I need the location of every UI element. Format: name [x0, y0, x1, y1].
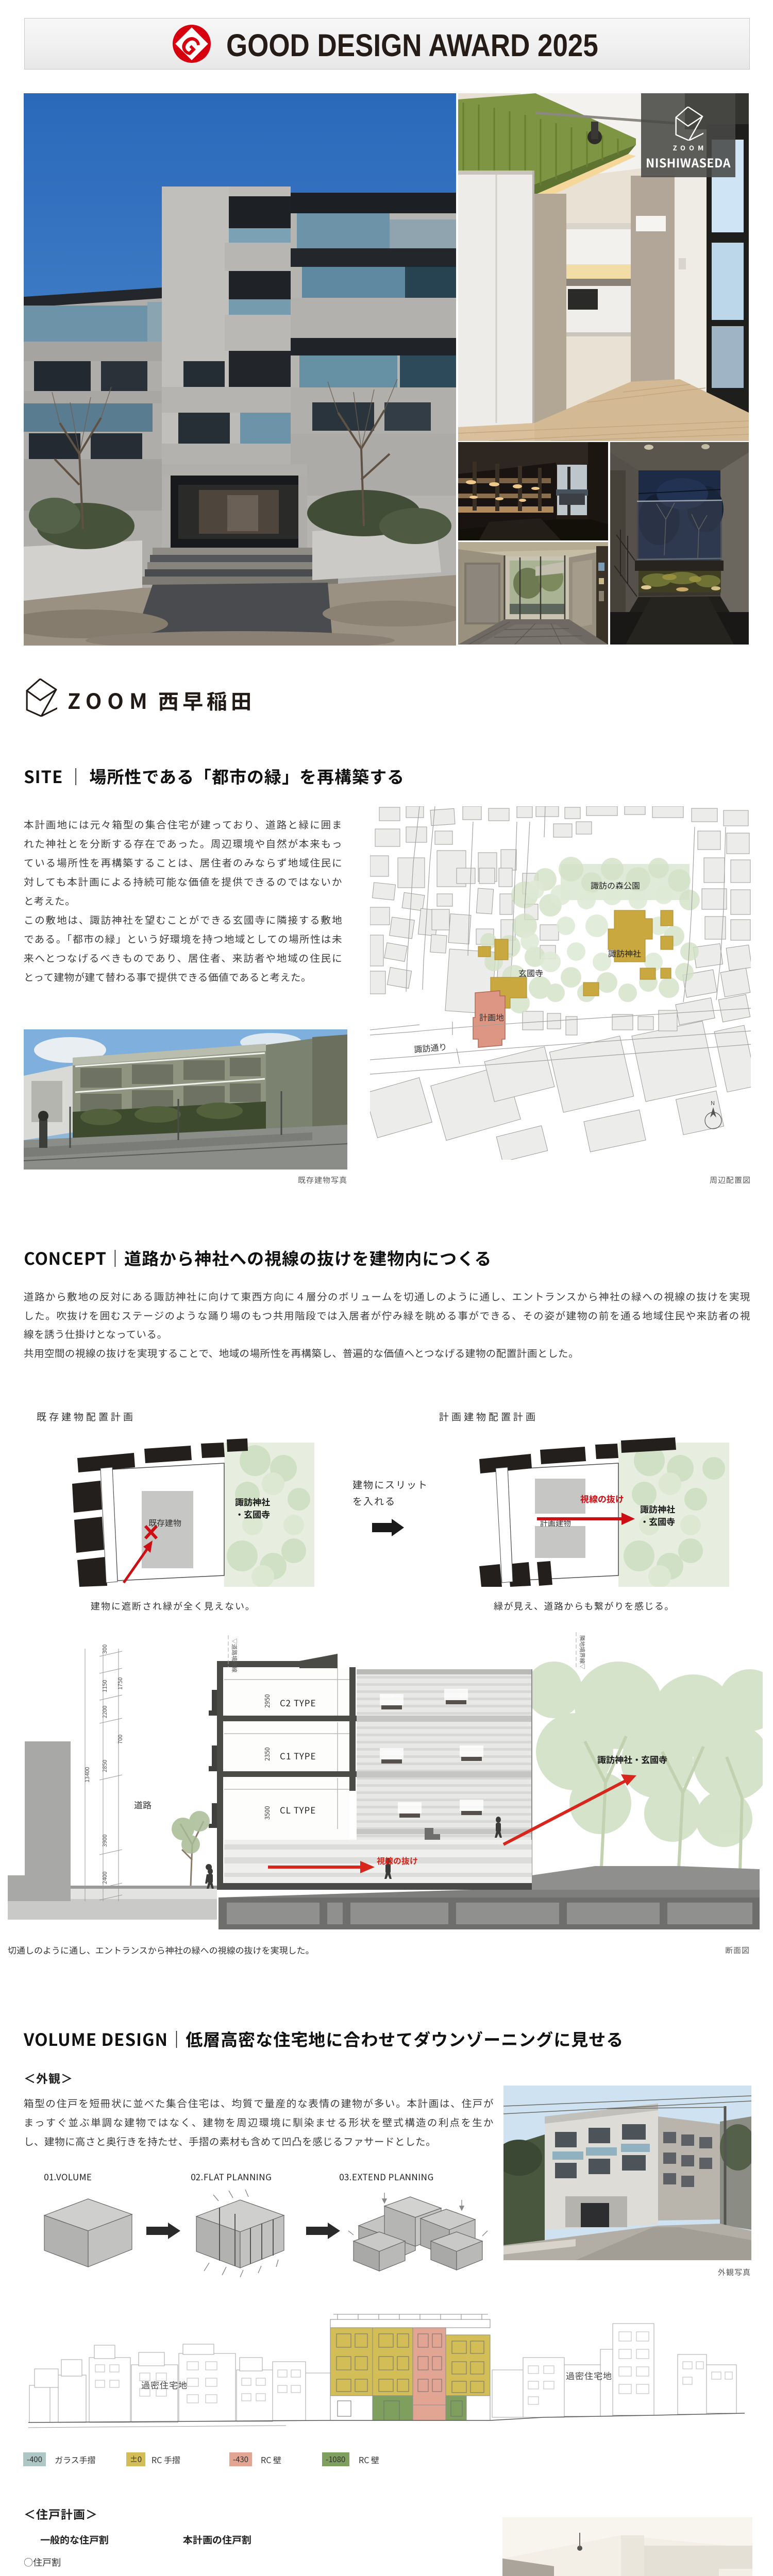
svg-text:・玄國寺: ・玄國寺 [235, 1507, 270, 1520]
svg-text:C2 TYPE: C2 TYPE [280, 1696, 316, 1709]
svg-text:道路: 道路 [134, 1798, 152, 1811]
svg-text:計画地: 計画地 [479, 1011, 504, 1023]
svg-text:諏訪神社: 諏訪神社 [608, 947, 641, 959]
svg-text:諏訪神社: 諏訪神社 [235, 1495, 270, 1508]
svg-text:1750: 1750 [116, 1677, 124, 1690]
svg-text:2400: 2400 [100, 1872, 109, 1884]
svg-text:N: N [711, 1099, 715, 1107]
svg-text:・玄國寺: ・玄國寺 [640, 1515, 675, 1528]
svg-text:3500: 3500 [263, 1806, 272, 1820]
svg-text:隣地境界線▽: 隣地境界線▽ [578, 1635, 586, 1669]
svg-text:2350: 2350 [263, 1747, 272, 1761]
svg-text:視線の抜け: 視線の抜け [580, 1492, 624, 1505]
svg-text:1150: 1150 [100, 1680, 109, 1692]
svg-text:CL TYPE: CL TYPE [280, 1803, 316, 1816]
svg-text:諏訪神社・玄國寺: 諏訪神社・玄國寺 [597, 1753, 667, 1766]
svg-text:玄國寺: 玄國寺 [518, 967, 543, 979]
svg-text:700: 700 [116, 1735, 124, 1744]
svg-text:3900: 3900 [100, 1835, 109, 1847]
svg-text:300: 300 [100, 1645, 109, 1654]
svg-text:既存建物: 既存建物 [148, 1516, 181, 1529]
svg-text:13400: 13400 [83, 1767, 91, 1783]
svg-text:諏訪の森公園: 諏訪の森公園 [591, 879, 640, 891]
svg-text:視線の抜け: 視線の抜け [377, 1854, 418, 1867]
svg-text:2200: 2200 [100, 1706, 109, 1718]
svg-text:諏訪神社: 諏訪神社 [640, 1502, 675, 1515]
svg-text:C1 TYPE: C1 TYPE [280, 1749, 316, 1762]
svg-text:諏訪通り: 諏訪通り [413, 1040, 447, 1055]
svg-text:2850: 2850 [100, 1760, 109, 1772]
svg-text:2950: 2950 [263, 1694, 272, 1708]
svg-text:▽道路境界線: ▽道路境界線 [230, 1638, 239, 1672]
